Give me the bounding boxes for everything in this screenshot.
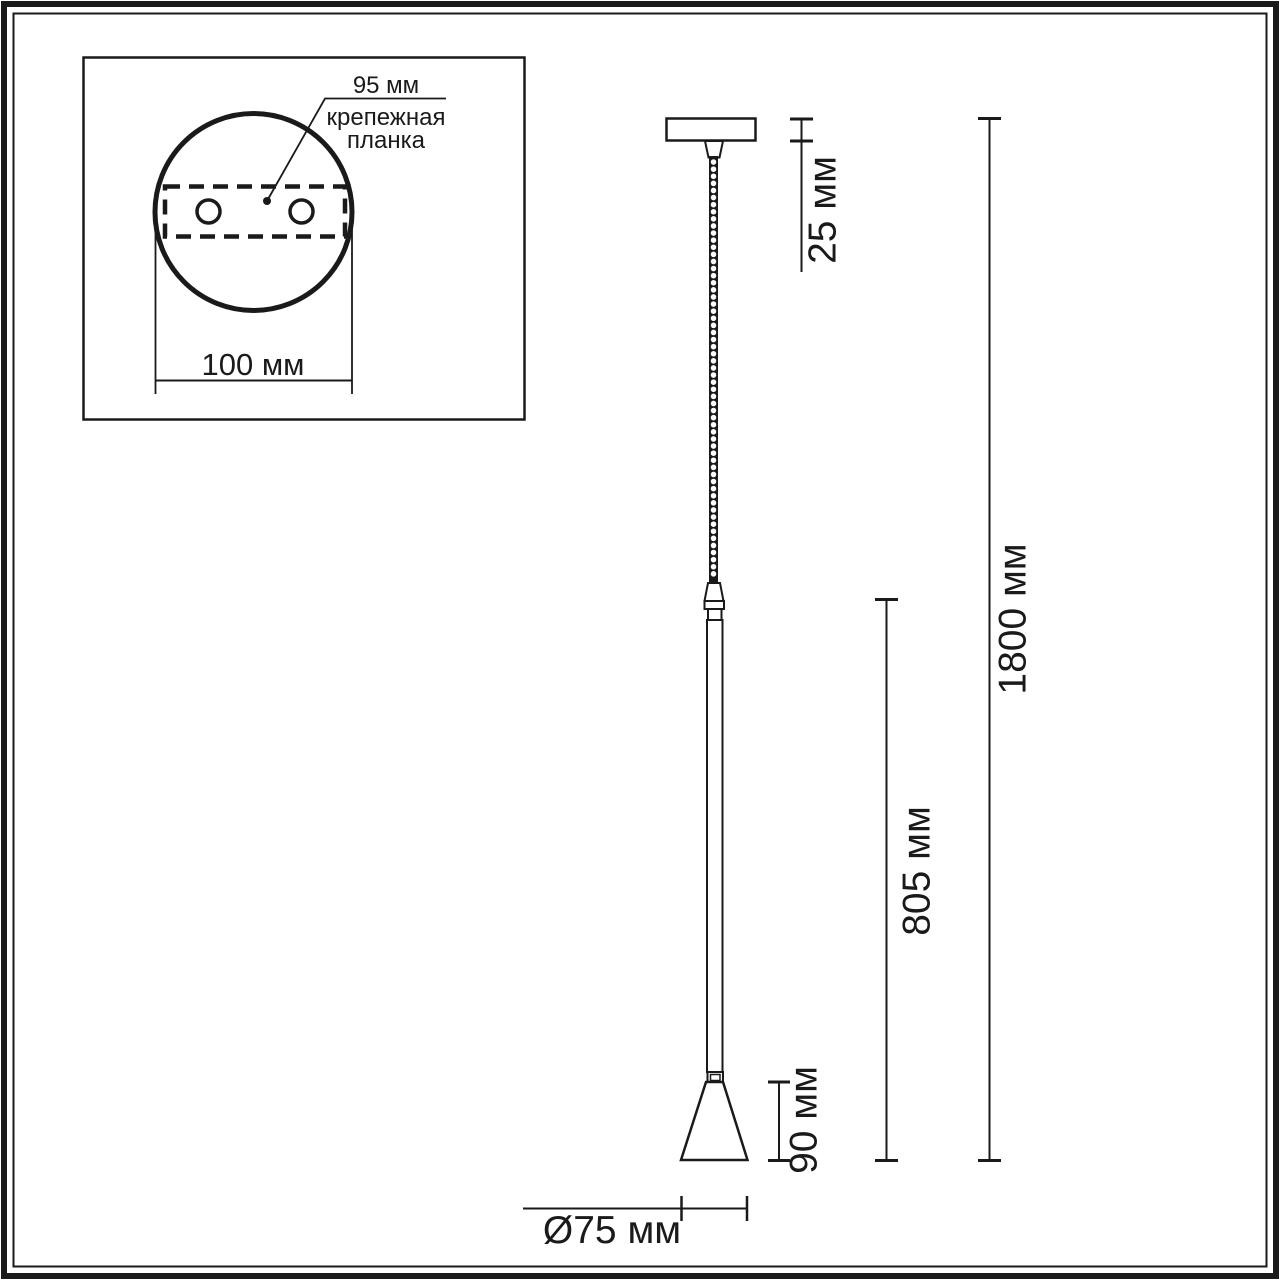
cone-shade bbox=[681, 1082, 748, 1160]
dimension-shade-height: 90 мм bbox=[768, 1066, 826, 1174]
dim-805-label: 805 мм bbox=[896, 806, 939, 936]
pendant-lamp-drawing bbox=[667, 119, 756, 1161]
width-dimension-label: 100 мм bbox=[202, 347, 305, 382]
dim-1800-label: 1800 мм bbox=[992, 543, 1035, 694]
dimension-shade-diameter: Ø75 мм bbox=[523, 1196, 748, 1252]
callout-value-label: 95 мм bbox=[353, 72, 419, 99]
pendant-lamp-dimension-drawing: 95 мм крепежная планка 100 мм 25 мм 1800 bbox=[0, 0, 1280, 1280]
gland-flange bbox=[705, 601, 725, 609]
canopy-neck bbox=[705, 141, 723, 158]
stem-rod bbox=[707, 620, 723, 1072]
dim-25-label: 25 мм bbox=[802, 156, 845, 264]
gland-collar bbox=[708, 609, 722, 620]
dim-90-label: 90 мм bbox=[783, 1066, 826, 1174]
mount-inset: 95 мм крепежная планка 100 мм bbox=[84, 58, 525, 420]
diagram-canvas: 95 мм крепежная планка 100 мм 25 мм 1800 bbox=[0, 0, 1280, 1280]
callout-name-line2: планка bbox=[347, 127, 426, 154]
shade-fitting-inner bbox=[711, 1075, 721, 1081]
dim-75-label: Ø75 мм bbox=[543, 1209, 681, 1252]
dimension-canopy-height: 25 мм bbox=[790, 119, 845, 272]
dimension-overall-height: 1800 мм bbox=[978, 119, 1035, 1161]
canopy-top-view-circle bbox=[155, 114, 352, 311]
ceiling-canopy bbox=[667, 119, 756, 141]
cable-gland-cone bbox=[705, 583, 724, 601]
dimension-stem-length: 805 мм bbox=[875, 600, 939, 1161]
